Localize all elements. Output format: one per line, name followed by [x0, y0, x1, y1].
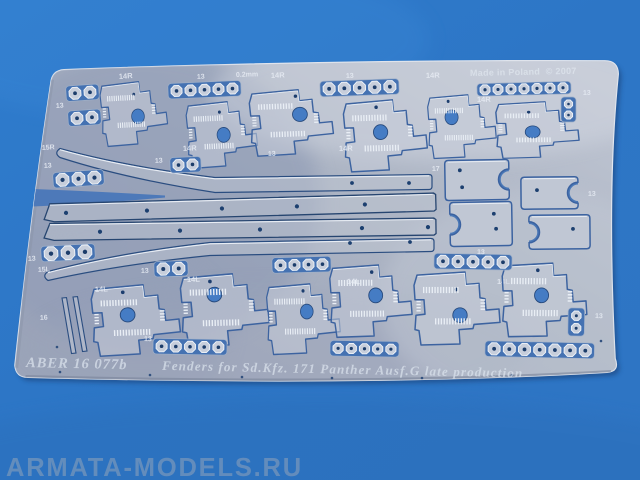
svg-text:13: 13	[477, 249, 485, 256]
svg-text:15R: 15R	[42, 144, 55, 152]
svg-text:15L: 15L	[38, 266, 51, 274]
svg-text:13: 13	[588, 191, 596, 198]
svg-text:13: 13	[346, 73, 354, 80]
svg-text:13: 13	[141, 268, 149, 275]
svg-text:14R: 14R	[271, 70, 286, 80]
svg-text:ABER 16 077b: ABER 16 077b	[25, 355, 128, 373]
svg-text:13: 13	[28, 256, 36, 263]
svg-text:14R: 14R	[339, 144, 354, 153]
svg-text:13: 13	[56, 102, 64, 110]
svg-text:13: 13	[144, 336, 152, 343]
svg-text:13: 13	[595, 313, 603, 320]
svg-text:13: 13	[268, 151, 276, 158]
svg-text:ARMATA-MODELS.RU: ARMATA-MODELS.RU	[6, 454, 303, 480]
svg-text:16: 16	[40, 315, 48, 322]
svg-text:13: 13	[583, 90, 591, 97]
svg-text:13: 13	[155, 158, 163, 165]
svg-text:14L: 14L	[187, 275, 201, 284]
svg-text:13: 13	[197, 74, 205, 81]
svg-text:13: 13	[44, 162, 52, 170]
svg-text:17: 17	[432, 166, 440, 173]
svg-text:0.2mm: 0.2mm	[236, 71, 258, 79]
svg-text:14R: 14R	[426, 71, 441, 80]
svg-text:14R: 14R	[183, 143, 198, 153]
svg-text:14L: 14L	[347, 277, 360, 286]
svg-text:14R: 14R	[119, 71, 134, 81]
svg-text:14L: 14L	[95, 284, 109, 294]
